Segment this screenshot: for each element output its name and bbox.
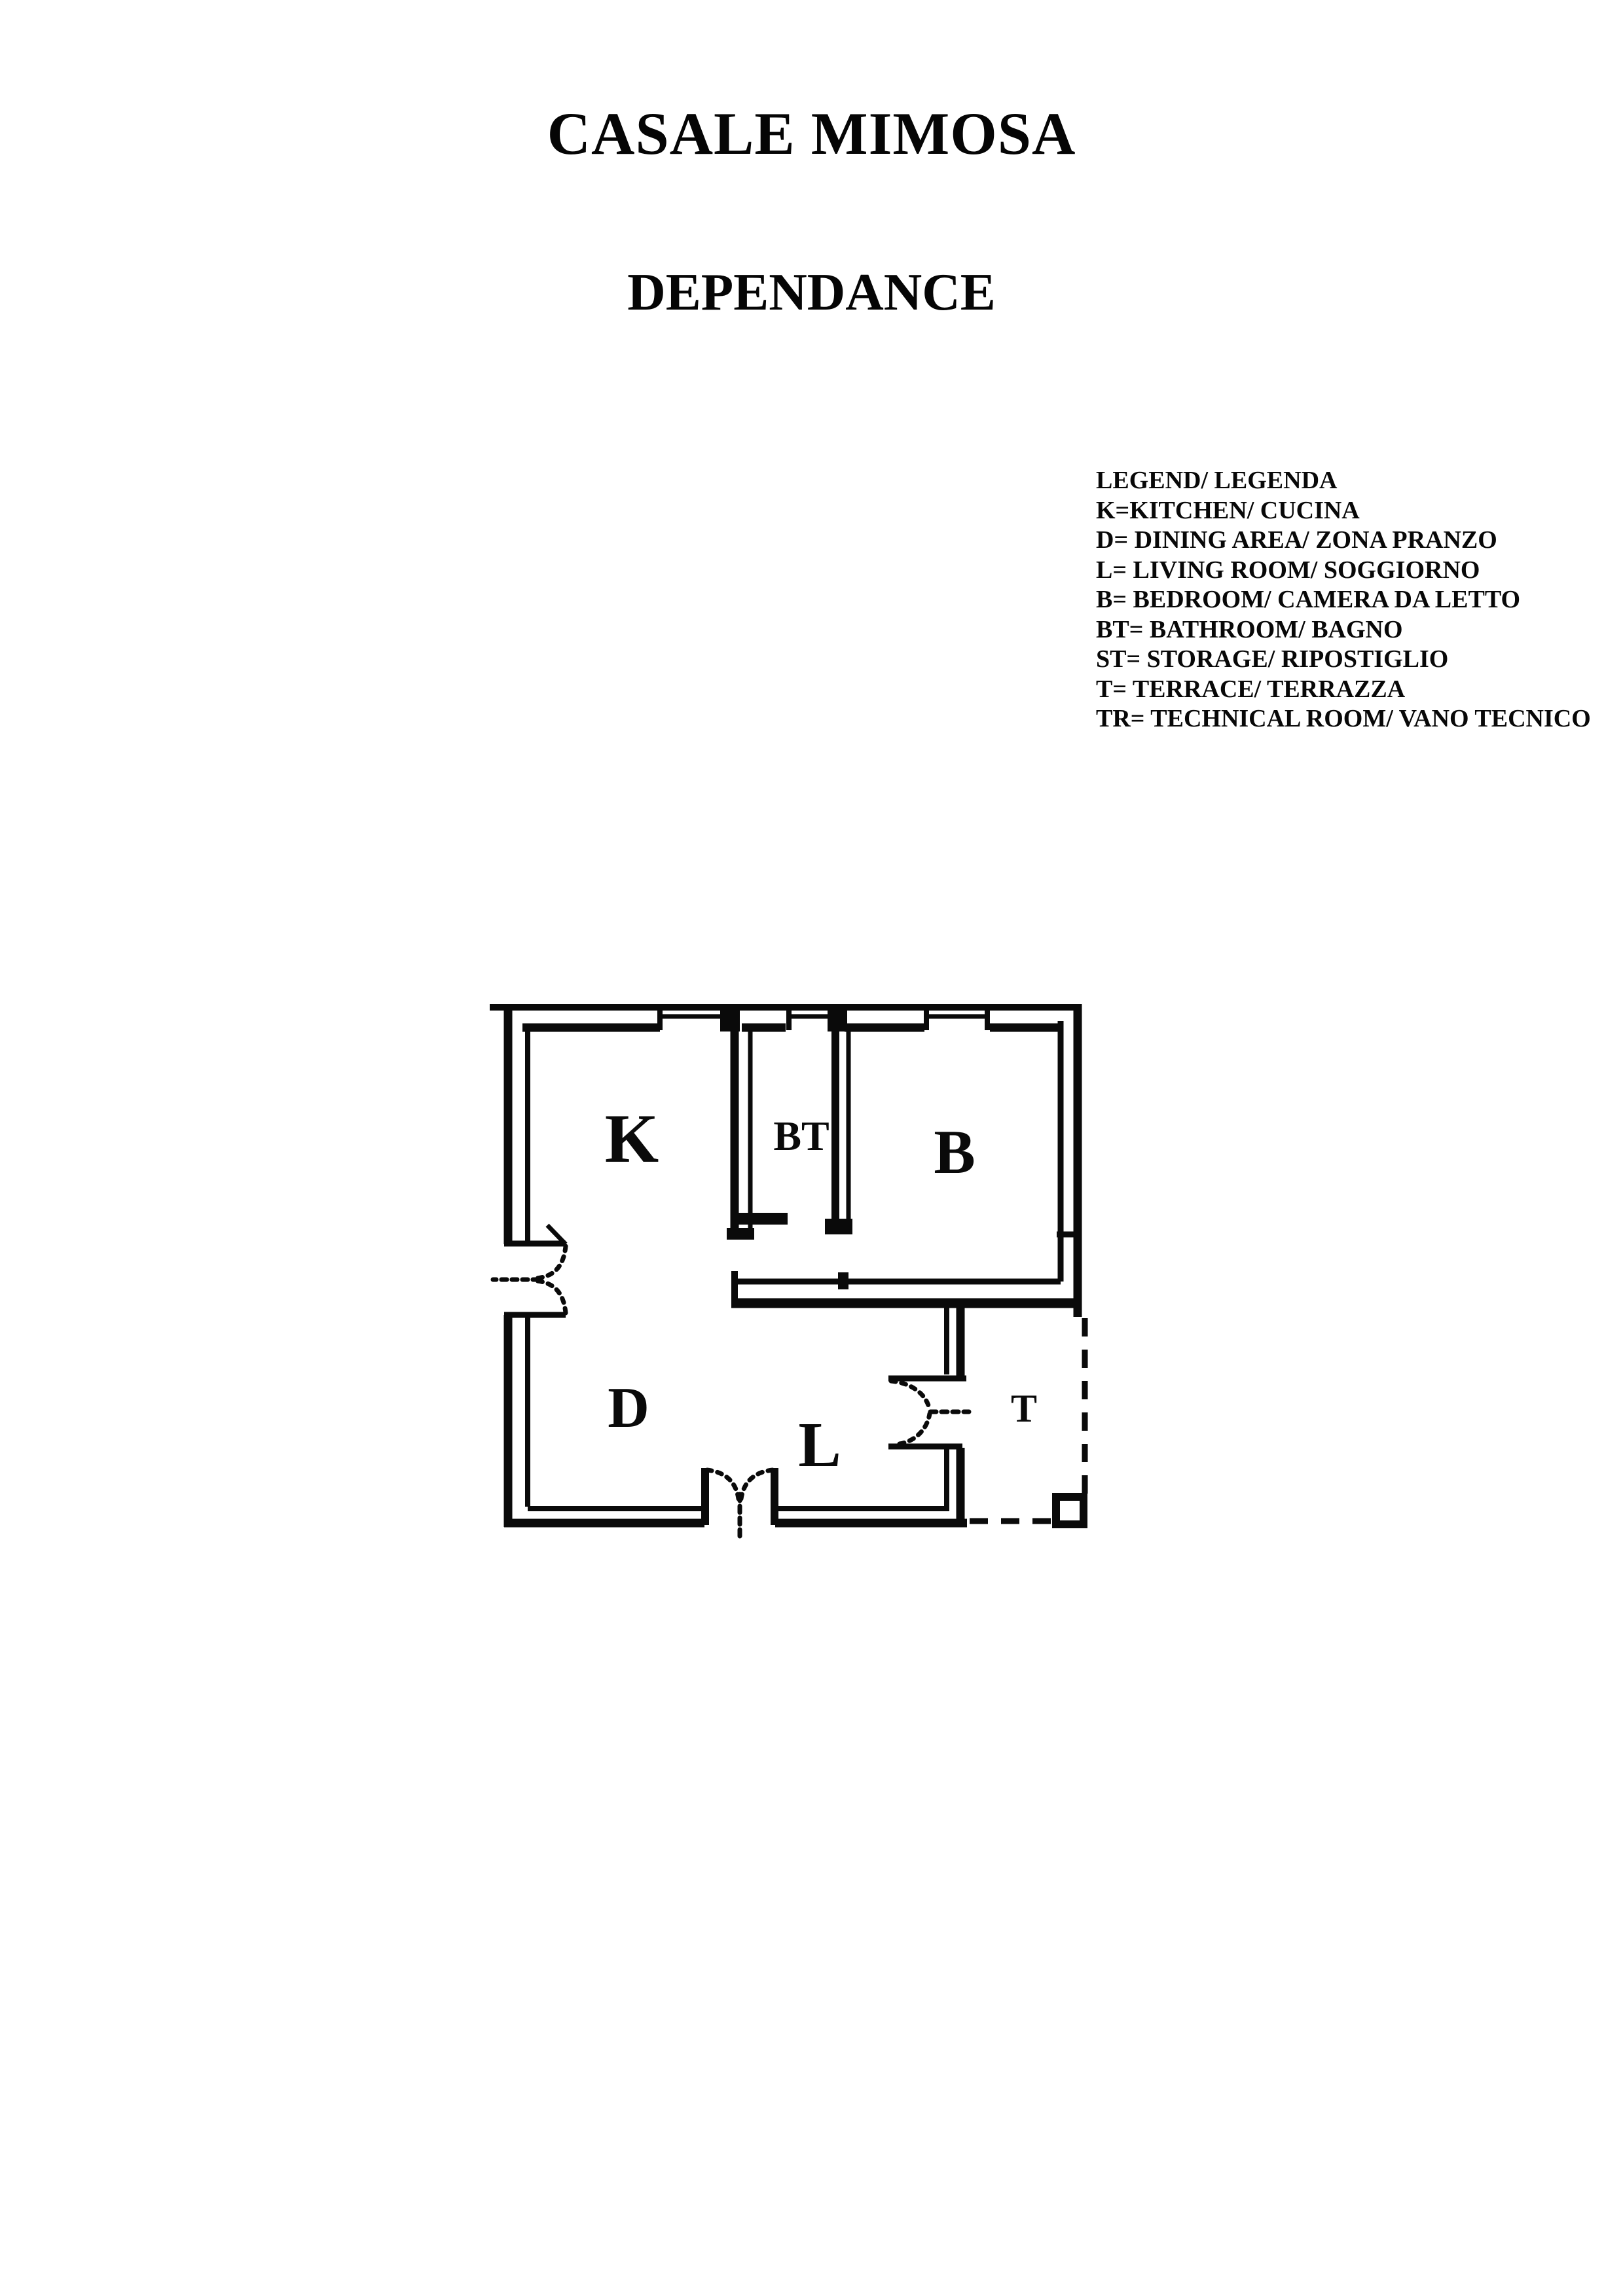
- room-label-terrace: T: [1011, 1387, 1037, 1430]
- legend-line-technical-room: TR= TECHNICAL ROOM/ VANO TECNICO: [1096, 704, 1591, 734]
- room-labels: K BT B D L T: [605, 1100, 1037, 1480]
- scanned-floorplan-page: CASALE MIMOSA DEPENDANCE LEGEND/ LEGENDA…: [0, 0, 1623, 2296]
- room-label-dining: D: [608, 1376, 649, 1440]
- exterior-walls: [490, 1004, 1082, 1527]
- room-label-kitchen: K: [605, 1100, 659, 1177]
- floor-plan-drawing: K BT B D L T: [458, 936, 1133, 1610]
- legend-line-heading: LEGEND/ LEGENDA: [1096, 466, 1591, 496]
- legend-line-terrace: T= TERRACE/ TERRAZZA: [1096, 675, 1591, 705]
- legend-line-living: L= LIVING ROOM/ SOGGIORNO: [1096, 556, 1591, 586]
- page-subtitle: DEPENDANCE: [0, 266, 1623, 319]
- legend-line-bedroom: B= BEDROOM/ CAMERA DA LETTO: [1096, 585, 1591, 615]
- room-label-bedroom: B: [934, 1117, 975, 1187]
- terrace-pillar: [1056, 1497, 1084, 1524]
- legend-line-bathroom: BT= BATHROOM/ BAGNO: [1096, 615, 1591, 645]
- room-label-bathroom: BT: [773, 1113, 829, 1159]
- floor-plan: K BT B D L T: [458, 936, 1133, 1610]
- legend-line-storage: ST= STORAGE/ RIPOSTIGLIO: [1096, 645, 1591, 675]
- page-title: CASALE MIMOSA: [0, 103, 1623, 164]
- door-swing-entrance-bottom-icon: [705, 1468, 775, 1539]
- legend-line-kitchen: K=KITCHEN/ CUCINA: [1096, 496, 1591, 526]
- room-label-living: L: [798, 1410, 841, 1480]
- legend-line-dining: D= DINING AREA/ ZONA PRANZO: [1096, 526, 1591, 556]
- legend: LEGEND/ LEGENDA K=KITCHEN/ CUCINA D= DIN…: [1096, 466, 1591, 734]
- door-swing-terrace-icon: [891, 1381, 969, 1444]
- window-marks: [660, 1010, 987, 1031]
